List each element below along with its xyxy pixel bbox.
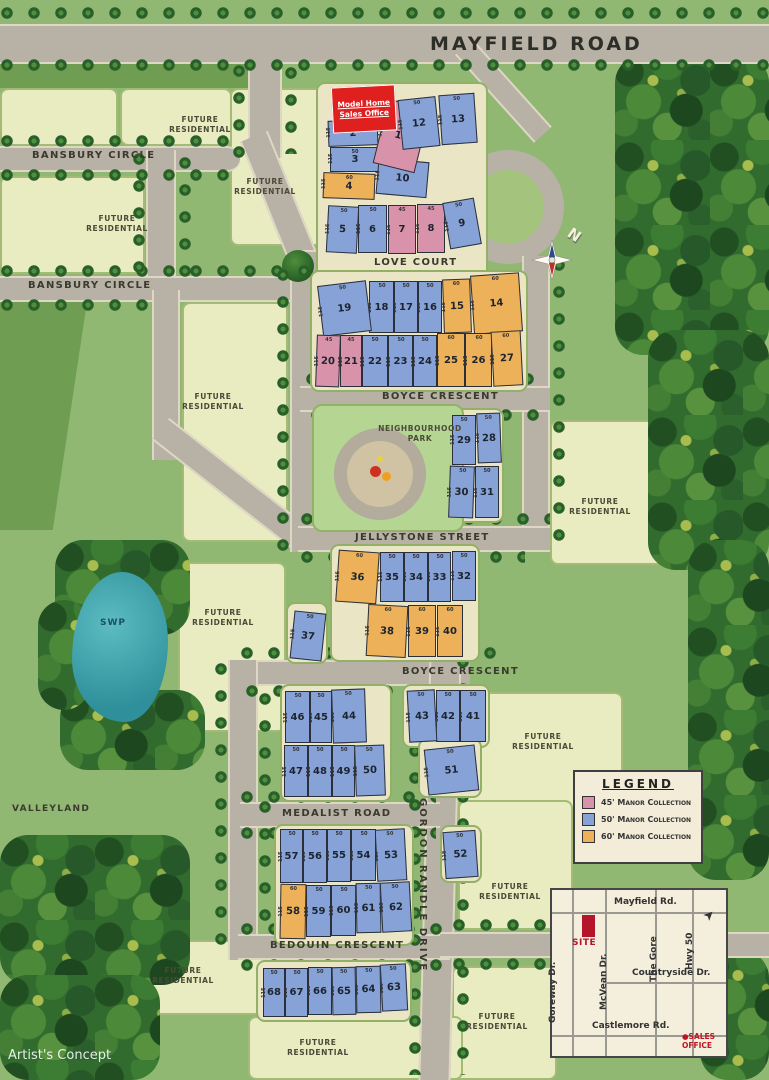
lot-front-dim: 50 xyxy=(340,208,347,213)
lot-number: 17 xyxy=(399,302,413,313)
future-residential-label: FUTURE RESIDENTIAL xyxy=(451,1012,543,1032)
lot-depth-dim: 115 xyxy=(411,356,416,367)
lot-front-dim: 50 xyxy=(483,468,490,473)
street-label-jellystone: JELLYSTONE STREET xyxy=(355,532,490,543)
lot-51: 5011551 xyxy=(424,744,480,795)
lot-22: 5011522 xyxy=(362,335,388,387)
inset-road-countryside xyxy=(605,982,726,984)
lot-31: 5011531 xyxy=(475,466,499,518)
lot-front-dim: 50 xyxy=(340,887,347,892)
lot-front-dim: 50 xyxy=(316,747,323,752)
lot-36: 6011536 xyxy=(335,550,380,605)
lot-33: 5011533 xyxy=(428,552,451,602)
future-residential-label: FUTURE RESIDENTIAL xyxy=(272,1038,364,1058)
lot-front-dim: 60 xyxy=(447,335,454,340)
lot-65: 5011565 xyxy=(332,967,357,1015)
lot-front-dim: 50 xyxy=(369,207,376,212)
inset-label-the-gore: The Gore xyxy=(649,936,659,982)
lot-front-dim: 50 xyxy=(366,747,373,752)
lot-34: 5011534 xyxy=(404,552,428,602)
street-label-boyce-1: BOYCE CRESCENT xyxy=(382,391,499,402)
lot-depth-dim: 115 xyxy=(354,903,359,914)
lot-66: 5011566 xyxy=(308,967,332,1015)
lot-number: 21 xyxy=(344,356,358,367)
lot-number: 27 xyxy=(500,353,514,365)
lot-number: 14 xyxy=(489,298,504,310)
lot-front-dim: 50 xyxy=(469,692,476,697)
lot-front-dim: 50 xyxy=(288,831,295,836)
lot-depth-dim: 115 xyxy=(490,354,496,365)
street-label-medalist: MEDALIST ROAD xyxy=(282,808,391,819)
lot-depth-dim: 115 xyxy=(386,224,391,235)
lot-depth-dim: 115 xyxy=(447,486,452,497)
compass-star-icon xyxy=(530,238,574,282)
legend-box: LEGEND 45' Manor Collection50' Manor Col… xyxy=(573,770,703,864)
lot-depth-dim: 115 xyxy=(278,906,283,917)
lot-depth-dim: 115 xyxy=(424,767,430,778)
lot-15: 6011515 xyxy=(442,279,472,334)
lot-number: 16 xyxy=(423,302,437,313)
lot-4: 601154 xyxy=(323,172,376,200)
legend-label: 50' Manor Collection xyxy=(601,815,691,824)
lot-49: 5011549 xyxy=(332,745,355,797)
lot-5: 501155 xyxy=(326,205,359,254)
lot-front-dim: 60 xyxy=(491,276,498,282)
lot-depth-dim: 115 xyxy=(386,356,391,367)
lot-number: 62 xyxy=(389,901,403,913)
lot-number: 53 xyxy=(384,849,398,861)
lot-depth-dim: 115 xyxy=(261,987,266,998)
inset-label-goreway: Goreway Dr. xyxy=(548,962,558,1023)
lot-front-dim: 50 xyxy=(444,692,451,697)
lot-63: 5011563 xyxy=(380,963,408,1011)
lot-14: 6011514 xyxy=(470,272,523,334)
lot-45: 5011545 xyxy=(310,691,332,743)
legend-items: 45' Manor Collection50' Manor Collection… xyxy=(582,796,694,843)
lot-number: 56 xyxy=(308,851,322,862)
lot-depth-dim: 115 xyxy=(356,224,361,235)
swp-label: SWP xyxy=(100,618,126,628)
lot-number: 23 xyxy=(394,356,408,367)
lot-depth-dim: 115 xyxy=(442,850,448,861)
inset-site-marker xyxy=(582,915,595,937)
lot-front-dim: 60 xyxy=(475,335,482,340)
lot-front-dim: 60 xyxy=(453,281,460,286)
lot-25: 6011525 xyxy=(437,333,465,387)
lot-number: 41 xyxy=(466,711,480,722)
lot-front-dim: 50 xyxy=(360,831,367,836)
street-label-gordon-randle: GORDON RANDLE DRIVE xyxy=(417,798,428,973)
lot-64: 5011564 xyxy=(356,966,382,1013)
lot-front-dim: 50 xyxy=(417,692,424,697)
lot-number: 28 xyxy=(482,432,496,443)
lot-53: 5011553 xyxy=(375,828,408,881)
lot-18: 5011518 xyxy=(369,281,394,333)
lot-front-dim: 50 xyxy=(421,337,428,342)
lot-depth-dim: 115 xyxy=(444,220,451,231)
lot-front-dim: 50 xyxy=(413,100,421,106)
lot-depth-dim: 115 xyxy=(463,355,468,366)
lot-depth-dim: 115 xyxy=(326,127,331,138)
lot-23: 5011523 xyxy=(388,335,413,387)
lot-32: 5011532 xyxy=(452,551,476,601)
lot-number: 61 xyxy=(361,902,375,913)
lot-number: 30 xyxy=(454,486,468,497)
lot-68: 5011568 xyxy=(263,968,285,1017)
lot-number: 7 xyxy=(399,224,406,235)
lot-depth-dim: 115 xyxy=(406,626,411,637)
street-label-bansbury-1: BANSBURY CIRCLE xyxy=(32,150,155,161)
future-residential-label: FUTURE RESIDENTIAL xyxy=(497,732,589,752)
legend-swatch xyxy=(582,813,595,826)
lot-38: 6011538 xyxy=(366,604,409,658)
street-label-love-court: LOVE COURT xyxy=(374,257,457,268)
lot-front-dim: 50 xyxy=(378,283,385,288)
lot-17: 5011517 xyxy=(394,281,418,333)
lot-number: 18 xyxy=(375,302,389,313)
lot-39: 6011539 xyxy=(408,605,436,657)
lot-front-dim: 50 xyxy=(436,554,443,559)
lot-front-dim: 50 xyxy=(459,468,466,473)
lot-front-dim: 50 xyxy=(485,415,492,420)
lot-depth-dim: 115 xyxy=(314,355,319,366)
lot-30: 5011530 xyxy=(448,466,475,519)
future-residential-label: FUTURE RESIDENTIAL xyxy=(71,214,163,234)
lot-depth-dim: 115 xyxy=(278,851,283,862)
lot-front-dim: 50 xyxy=(338,285,346,291)
lot-front-dim: 50 xyxy=(388,554,395,559)
lot-number: 66 xyxy=(313,986,327,997)
inset-location-map: Mayfield Rd. Countryside Dr. Castlemore … xyxy=(550,888,728,1058)
inset-label-countryside: Countryside Dr. xyxy=(632,968,710,978)
lot-front-dim: 50 xyxy=(455,202,463,208)
lot-front-dim: 50 xyxy=(460,417,467,422)
lot-front-dim: 50 xyxy=(315,887,322,892)
lot-number: 46 xyxy=(291,712,305,723)
lot-44: 5011544 xyxy=(331,688,367,743)
lot-front-dim: 50 xyxy=(351,149,358,154)
lot-depth-dim: 115 xyxy=(438,115,444,126)
lot-number: 6 xyxy=(369,224,376,235)
lot-front-dim: 50 xyxy=(402,283,409,288)
lot-52: 5011552 xyxy=(442,830,478,879)
lot-front-dim: 50 xyxy=(311,831,318,836)
compass-rose: N xyxy=(530,238,574,286)
lot-number: 60 xyxy=(337,905,351,916)
lot-number: 65 xyxy=(337,985,351,996)
lot-front-dim: 50 xyxy=(386,831,393,836)
inset-sales-office-label: ●SALES OFFICE xyxy=(682,1032,722,1050)
legend-label: 45' Manor Collection xyxy=(601,798,691,807)
lot-depth-dim: 115 xyxy=(329,905,334,916)
lot-front-dim: 50 xyxy=(426,283,433,288)
lot-depth-dim: 115 xyxy=(475,433,480,444)
lot-number: 5 xyxy=(339,224,347,235)
lot-depth-dim: 115 xyxy=(473,487,478,498)
lot-54: 5011554 xyxy=(351,829,376,881)
lot-number: 26 xyxy=(472,355,486,366)
lot-front-dim: 60 xyxy=(502,333,509,338)
lot-front-dim: 50 xyxy=(270,970,277,975)
lot-number: 24 xyxy=(418,356,432,367)
lot-front-dim: 45 xyxy=(427,206,434,211)
lot-47: 5011547 xyxy=(284,745,308,797)
lot-13: 5011513 xyxy=(438,93,477,145)
lot-number: 59 xyxy=(312,906,326,917)
lot-number: 35 xyxy=(385,572,399,583)
lot-front-dim: 45 xyxy=(325,337,332,342)
legend-item: 45' Manor Collection xyxy=(582,796,694,809)
lot-depth-dim: 115 xyxy=(330,766,335,777)
street-label-bansbury-2: BANSBURY CIRCLE xyxy=(28,280,151,291)
lot-number: 63 xyxy=(387,982,401,994)
lot-48: 5011548 xyxy=(308,745,332,797)
lot-front-dim: 50 xyxy=(391,884,398,889)
lot-50: 5011550 xyxy=(354,744,386,796)
lot-number: 43 xyxy=(415,710,429,722)
inset-north-arrow-icon: ➤ xyxy=(700,906,718,924)
lot-number: 68 xyxy=(267,987,281,998)
lot-number: 48 xyxy=(313,766,327,777)
lot-depth-dim: 115 xyxy=(441,301,446,312)
lot-number: 52 xyxy=(453,849,468,861)
lot-front-dim: 50 xyxy=(345,691,352,696)
lot-number: 10 xyxy=(395,172,410,184)
lot-front-dim: 50 xyxy=(335,831,342,836)
lot-depth-dim: 115 xyxy=(450,571,455,582)
lot-number: 38 xyxy=(380,625,394,637)
lot-depth-dim: 115 xyxy=(318,306,324,317)
lot-number: 20 xyxy=(321,355,335,366)
lot-number: 55 xyxy=(332,850,346,861)
legend-title: LEGEND xyxy=(582,777,694,791)
valleyland-label: VALLEYLAND xyxy=(12,804,90,814)
lot-41: 5011541 xyxy=(460,690,486,742)
lot-number: 34 xyxy=(409,572,423,583)
lot-number: 54 xyxy=(357,850,371,861)
lot-number: 33 xyxy=(433,572,447,583)
inset-label-mayfield: Mayfield Rd. xyxy=(614,897,677,907)
lot-depth-dim: 115 xyxy=(398,119,404,130)
street-label-bedouin: BEDOUIN CRESCENT xyxy=(270,940,404,951)
lot-depth-dim: 115 xyxy=(360,356,365,367)
lot-front-dim: 50 xyxy=(306,614,314,620)
lot-number: 67 xyxy=(290,987,304,998)
lot-front-dim: 50 xyxy=(389,966,396,971)
inset-label-hwy50: Hwy 50 xyxy=(685,933,695,970)
lot-front-dim: 50 xyxy=(292,747,299,752)
lot-56: 5011556 xyxy=(303,829,327,883)
site-plan-map: 5011525011536011545011555011564511574511… xyxy=(0,0,769,1080)
legend-item: 50' Manor Collection xyxy=(582,813,694,826)
lot-front-dim: 50 xyxy=(316,969,323,974)
lot-number: 51 xyxy=(444,764,459,776)
lot-61: 5011561 xyxy=(356,883,382,933)
sales-office-label: Model Home Sales Office xyxy=(335,97,394,120)
lot-12: 5011512 xyxy=(397,96,440,150)
lot-58: 6011558 xyxy=(280,884,307,939)
street-label-mayfield: MAYFIELD ROAD xyxy=(430,33,643,55)
lot-number: 64 xyxy=(361,984,375,995)
lot-front-dim: 50 xyxy=(365,885,372,890)
lot-40: 6011540 xyxy=(437,605,463,657)
lot-number: 9 xyxy=(458,217,467,229)
lot-27: 6011527 xyxy=(491,330,524,386)
lot-depth-dim: 115 xyxy=(338,356,343,367)
lot-55: 5011555 xyxy=(327,829,351,882)
lot-front-dim: 50 xyxy=(340,969,347,974)
lot-62: 5011562 xyxy=(380,881,413,933)
future-residential-label: FUTURE RESIDENTIAL xyxy=(154,115,246,135)
lot-front-dim: 50 xyxy=(453,96,460,102)
lot-6: 501156 xyxy=(358,205,387,253)
lot-number: 15 xyxy=(450,300,464,311)
lot-front-dim: 50 xyxy=(446,749,454,755)
legend-label: 60' Manor Collection xyxy=(601,832,691,841)
lot-depth-dim: 115 xyxy=(304,906,309,917)
lot-front-dim: 60 xyxy=(346,175,353,180)
lot-7: 451157 xyxy=(388,205,416,254)
inset-road-goreway xyxy=(572,890,574,1056)
lot-number: 36 xyxy=(350,571,365,583)
lot-front-dim: 60 xyxy=(384,607,391,612)
lot-9: 501159 xyxy=(442,198,482,250)
neighbourhood-park-label: NEIGHBOURHOOD PARK xyxy=(374,424,466,444)
lot-28: 5011528 xyxy=(476,413,502,464)
lot-depth-dim: 115 xyxy=(325,223,331,234)
lot-number: 32 xyxy=(457,571,471,582)
lot-front-dim: 50 xyxy=(460,553,467,558)
lot-number: 49 xyxy=(337,766,351,777)
lot-number: 8 xyxy=(428,223,435,234)
lot-depth-dim: 115 xyxy=(379,902,385,913)
lot-front-dim: 50 xyxy=(340,747,347,752)
future-residential-label: FUTURE RESIDENTIAL xyxy=(137,966,229,986)
lot-depth-dim: 115 xyxy=(282,766,287,777)
lot-number: 31 xyxy=(480,487,494,498)
lot-number: 22 xyxy=(368,356,382,367)
lot-60: 5011560 xyxy=(331,885,356,936)
legend-swatch xyxy=(582,830,595,843)
lot-front-dim: 60 xyxy=(418,607,425,612)
lot-front-dim: 50 xyxy=(412,554,419,559)
lot-number: 12 xyxy=(411,117,426,129)
lot-front-dim: 50 xyxy=(317,693,324,698)
lot-front-dim: 45 xyxy=(347,337,354,342)
lot-depth-dim: 115 xyxy=(375,170,381,181)
lot-number: 4 xyxy=(345,180,352,191)
lot-number: 47 xyxy=(289,766,303,777)
street-label-boyce-2: BOYCE CRESCENT xyxy=(402,666,519,677)
lot-depth-dim: 115 xyxy=(365,625,371,636)
lot-front-dim: 60 xyxy=(355,553,362,559)
lot-59: 5011559 xyxy=(306,885,331,937)
lot-46: 5011546 xyxy=(285,691,310,743)
lot-depth-dim: 115 xyxy=(415,223,420,234)
lot-number: 57 xyxy=(285,851,299,862)
lot-depth-dim: 115 xyxy=(283,712,288,723)
lot-depth-dim: 115 xyxy=(328,153,333,164)
inset-label-mcvean: McVean Dr. xyxy=(599,953,609,1010)
inset-sales-office-text: SALES OFFICE xyxy=(682,1032,715,1050)
legend-item: 60' Manor Collection xyxy=(582,830,694,843)
lot-26: 6011526 xyxy=(465,333,492,387)
future-residential-label: FUTURE RESIDENTIAL xyxy=(167,392,259,412)
lot-number: 39 xyxy=(415,626,429,637)
lot-57: 5011557 xyxy=(280,829,303,883)
lot-number: 19 xyxy=(337,302,352,315)
lot-front-dim: 50 xyxy=(294,693,301,698)
lot-number: 37 xyxy=(300,630,315,642)
future-residential-label: FUTURE RESIDENTIAL xyxy=(177,608,269,628)
lot-8: 451158 xyxy=(417,204,445,253)
lot-24: 5011524 xyxy=(413,335,437,387)
lot-front-dim: 60 xyxy=(290,886,297,891)
lot-depth-dim: 115 xyxy=(321,179,326,190)
lot-number: 13 xyxy=(451,113,466,125)
lot-number: 3 xyxy=(352,154,359,165)
lot-35: 5011535 xyxy=(380,552,404,602)
lot-depth-dim: 115 xyxy=(435,626,440,637)
lot-depth-dim: 115 xyxy=(335,570,341,581)
lot-depth-dim: 115 xyxy=(353,766,358,777)
lot-number: 25 xyxy=(444,355,458,366)
lot-front-dim: 50 xyxy=(365,968,372,973)
lot-number: 45 xyxy=(314,712,328,723)
lot-depth-dim: 115 xyxy=(435,355,440,366)
lot-37: 5011537 xyxy=(290,610,327,661)
inset-label-castlemore: Castlemore Rd. xyxy=(592,1021,670,1031)
future-residential-label: FUTURE RESIDENTIAL xyxy=(554,497,646,517)
model-home-sales-office: Model Home Sales Office xyxy=(331,84,397,133)
lot-42: 5011542 xyxy=(436,690,460,742)
inset-site-label: SITE xyxy=(572,938,596,948)
future-residential-label: FUTURE RESIDENTIAL xyxy=(464,882,556,902)
lot-front-dim: 50 xyxy=(455,833,462,839)
lot-19: 5011519 xyxy=(317,280,372,337)
lot-depth-dim: 115 xyxy=(378,572,383,583)
lot-front-dim: 60 xyxy=(446,607,453,612)
lot-number: 42 xyxy=(441,711,455,722)
lot-number: 44 xyxy=(342,710,356,721)
legend-swatch xyxy=(582,796,595,809)
lot-depth-dim: 115 xyxy=(306,766,311,777)
lot-number: 58 xyxy=(286,906,300,917)
artist-concept-label: Artist's Concept xyxy=(8,1048,111,1063)
lot-front-dim: 50 xyxy=(397,337,404,342)
lot-front-dim: 50 xyxy=(371,337,378,342)
lot-front-dim: 50 xyxy=(293,970,300,975)
lot-depth-dim: 115 xyxy=(406,711,412,722)
lot-number: 40 xyxy=(443,626,457,637)
future-residential-label: FUTURE RESIDENTIAL xyxy=(219,177,311,197)
lot-front-dim: 45 xyxy=(398,207,405,212)
lot-number: 50 xyxy=(363,765,377,776)
lot-16: 5011516 xyxy=(418,281,442,333)
lot-depth-dim: 115 xyxy=(290,629,296,640)
lot-43: 5011543 xyxy=(407,689,438,742)
lot-67: 5011567 xyxy=(285,968,308,1017)
